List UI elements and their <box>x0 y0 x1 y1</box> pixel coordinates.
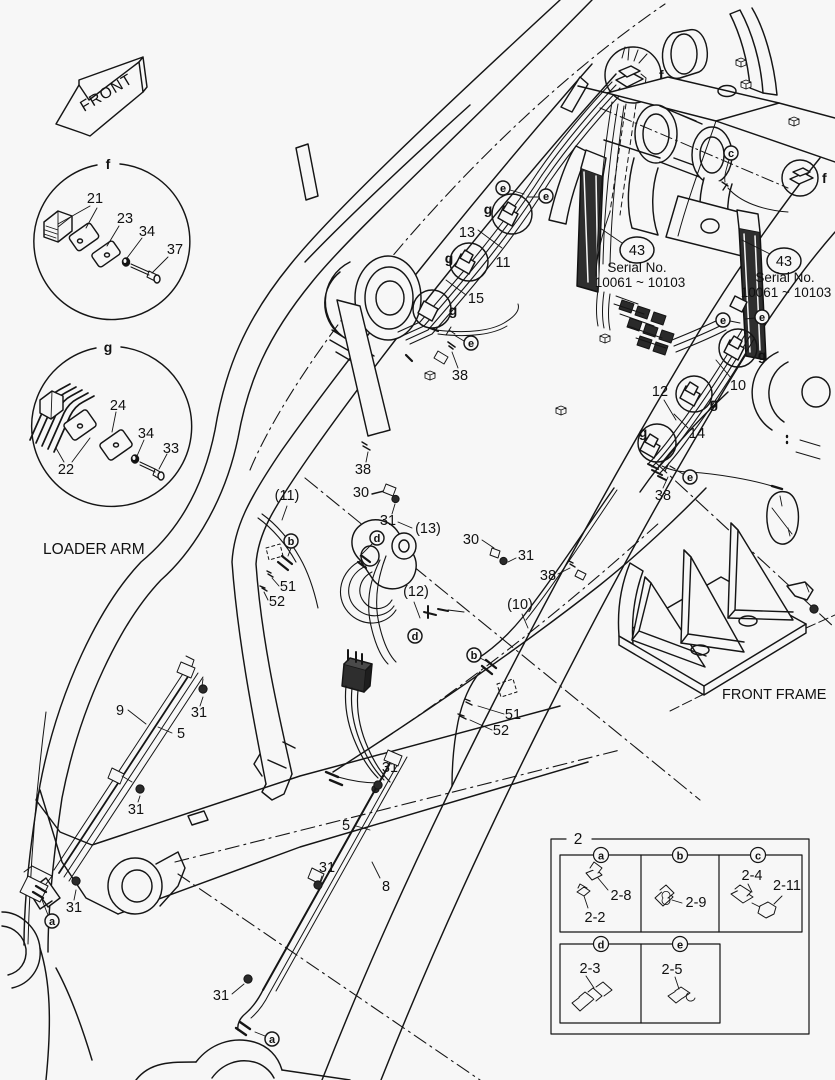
svg-text:g: g <box>484 201 493 217</box>
svg-text:d: d <box>598 940 605 952</box>
svg-text:2-11: 2-11 <box>773 878 801 894</box>
svg-text:10061 ~ 10103: 10061 ~ 10103 <box>595 275 685 290</box>
svg-text:a: a <box>269 1034 276 1046</box>
svg-text:g: g <box>639 424 648 440</box>
svg-text:2-3: 2-3 <box>580 961 601 977</box>
svg-text:g: g <box>104 339 113 355</box>
svg-text:30: 30 <box>463 532 479 548</box>
svg-text:Serial No.: Serial No. <box>755 270 814 285</box>
svg-text:38: 38 <box>452 368 468 384</box>
svg-text:31: 31 <box>191 705 207 721</box>
svg-text:Serial No.: Serial No. <box>607 260 666 275</box>
svg-text:b: b <box>471 650 478 662</box>
svg-text:38: 38 <box>355 462 371 478</box>
svg-text:8: 8 <box>382 879 390 895</box>
svg-text:b: b <box>677 851 684 863</box>
svg-text:31: 31 <box>213 988 229 1004</box>
svg-text:52: 52 <box>493 723 509 739</box>
svg-text:51: 51 <box>280 579 296 595</box>
svg-text:37: 37 <box>167 242 183 258</box>
svg-text:c: c <box>728 148 734 160</box>
svg-text:31: 31 <box>128 802 144 818</box>
svg-text:a: a <box>598 851 605 863</box>
svg-text:43: 43 <box>629 243 645 259</box>
svg-text:2: 2 <box>574 831 583 848</box>
svg-text:21: 21 <box>87 191 103 207</box>
svg-text:2-4: 2-4 <box>742 868 763 884</box>
svg-text:g: g <box>710 395 719 411</box>
svg-text:52: 52 <box>269 594 285 610</box>
svg-text:51: 51 <box>505 707 521 723</box>
svg-text:31: 31 <box>518 548 534 564</box>
svg-text:d: d <box>412 631 419 643</box>
svg-text:12: 12 <box>652 384 668 400</box>
svg-text:e: e <box>759 312 765 324</box>
svg-text:34: 34 <box>139 224 155 240</box>
svg-text:43: 43 <box>776 254 792 270</box>
svg-text:a: a <box>49 916 56 928</box>
svg-text:(11): (11) <box>275 488 300 504</box>
svg-text:13: 13 <box>459 225 475 241</box>
svg-text:31: 31 <box>319 860 335 876</box>
svg-text:(10): (10) <box>507 597 533 613</box>
svg-text:11: 11 <box>495 255 510 271</box>
svg-text:22: 22 <box>58 462 74 478</box>
svg-text:c: c <box>755 851 761 863</box>
svg-text:e: e <box>500 183 506 195</box>
svg-text:10061 ~ 10103: 10061 ~ 10103 <box>741 285 831 300</box>
svg-text:e: e <box>468 338 474 350</box>
svg-text:31: 31 <box>66 900 82 916</box>
svg-text:e: e <box>543 191 549 203</box>
svg-text:(13): (13) <box>415 521 441 537</box>
svg-text:14: 14 <box>689 426 705 442</box>
svg-text:f: f <box>822 170 827 186</box>
svg-text:b: b <box>288 536 295 548</box>
svg-text:e: e <box>687 472 693 484</box>
svg-text:g: g <box>445 250 454 266</box>
svg-text:34: 34 <box>138 426 154 442</box>
svg-text:e: e <box>720 315 726 327</box>
svg-text:15: 15 <box>468 291 484 307</box>
svg-text:10: 10 <box>730 378 746 394</box>
svg-text:FRONT FRAME: FRONT FRAME <box>722 687 827 703</box>
svg-text:(12): (12) <box>403 584 429 600</box>
svg-text:2-5: 2-5 <box>662 962 683 978</box>
svg-text:5: 5 <box>342 818 350 834</box>
svg-text:g: g <box>449 302 458 318</box>
svg-text:2-8: 2-8 <box>611 888 632 904</box>
svg-text:33: 33 <box>163 441 179 457</box>
svg-text:g: g <box>758 347 767 363</box>
svg-text:e: e <box>677 940 683 952</box>
svg-text:2-9: 2-9 <box>686 895 707 911</box>
svg-text:2-2: 2-2 <box>585 910 606 926</box>
svg-text:d: d <box>374 533 381 545</box>
svg-text:31: 31 <box>380 513 396 529</box>
svg-text:23: 23 <box>117 211 133 227</box>
svg-text:LOADER ARM: LOADER ARM <box>43 541 145 558</box>
svg-text:24: 24 <box>110 398 126 414</box>
svg-text:38: 38 <box>655 488 671 504</box>
svg-text:5: 5 <box>177 726 185 742</box>
svg-text:30: 30 <box>353 485 369 501</box>
svg-text:f: f <box>106 156 111 172</box>
svg-text:9: 9 <box>116 703 124 719</box>
